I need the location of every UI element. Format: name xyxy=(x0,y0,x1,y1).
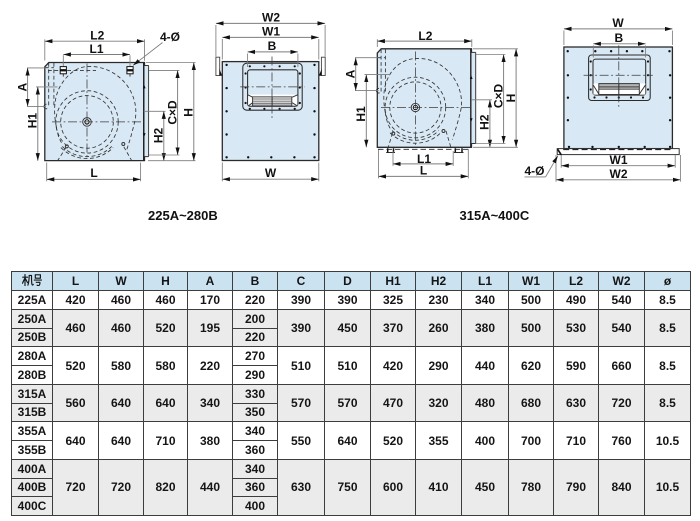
svg-text:B: B xyxy=(268,39,277,53)
svg-text:H2: H2 xyxy=(152,128,166,144)
svg-text:H1: H1 xyxy=(26,113,40,129)
svg-text:H1: H1 xyxy=(354,106,368,122)
svg-text:4-Ø: 4-Ø xyxy=(525,164,545,178)
svg-text:W: W xyxy=(612,16,624,30)
svg-text:L: L xyxy=(90,166,97,180)
svg-text:C×D: C×D xyxy=(165,100,179,125)
svg-text:W: W xyxy=(265,166,277,180)
svg-text:H: H xyxy=(182,108,196,117)
svg-text:H: H xyxy=(504,94,518,103)
svg-text:W1: W1 xyxy=(610,153,628,167)
svg-text:L: L xyxy=(420,164,427,178)
svg-text:W2: W2 xyxy=(610,167,628,181)
svg-text:A: A xyxy=(344,69,358,78)
svg-text:H2: H2 xyxy=(478,114,492,130)
svg-text:W1: W1 xyxy=(262,25,280,39)
svg-text:B: B xyxy=(614,31,623,45)
svg-text:W2: W2 xyxy=(262,11,280,25)
svg-text:L2: L2 xyxy=(418,29,432,43)
svg-text:4-Ø: 4-Ø xyxy=(160,30,180,44)
svg-text:L1: L1 xyxy=(89,42,103,56)
svg-text:L2: L2 xyxy=(90,29,104,43)
svg-text:A: A xyxy=(15,83,29,92)
